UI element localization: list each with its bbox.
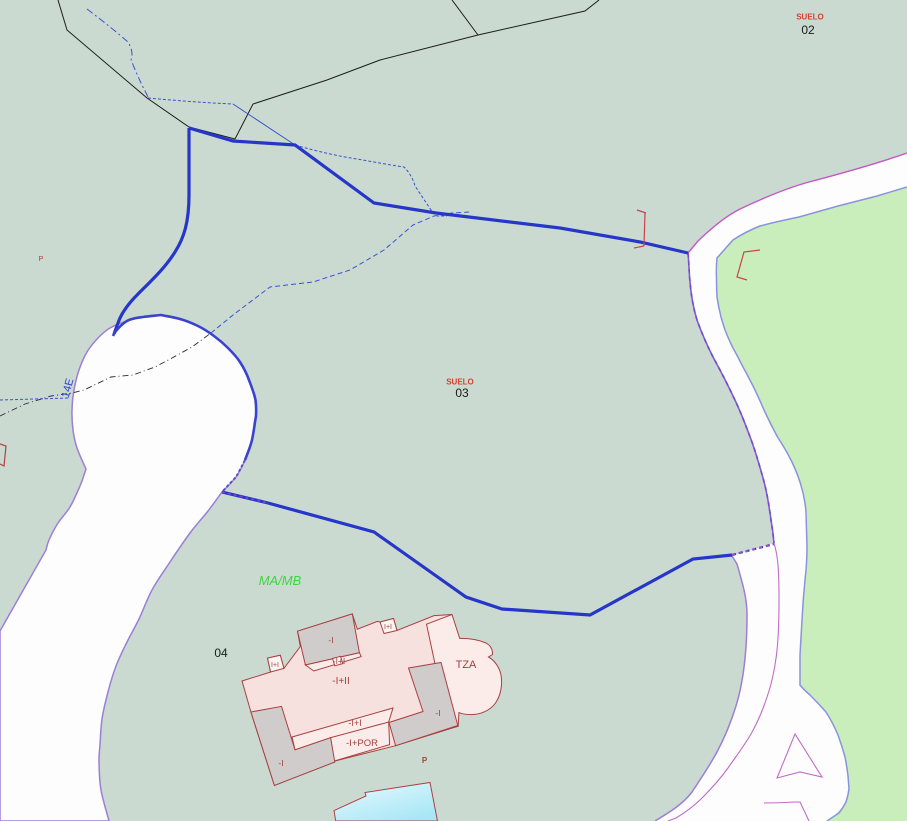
- svg-text:SUELO: SUELO: [796, 13, 824, 22]
- svg-text:04: 04: [214, 646, 228, 660]
- svg-text:TZA: TZA: [456, 659, 477, 671]
- svg-text:-I+I: -I+I: [333, 656, 346, 666]
- svg-text:I+I: I+I: [271, 662, 279, 669]
- svg-text:P: P: [422, 756, 428, 765]
- svg-text:MA/MB: MA/MB: [259, 573, 302, 588]
- svg-text:-I: -I: [435, 708, 440, 718]
- svg-text:-I: -I: [328, 635, 333, 645]
- svg-text:03: 03: [455, 386, 469, 400]
- svg-text:P: P: [39, 256, 44, 263]
- svg-text:-I+I: -I+I: [348, 718, 361, 728]
- svg-text:02: 02: [801, 23, 815, 37]
- svg-text:-I: -I: [278, 758, 283, 768]
- svg-text:I+I: I+I: [384, 624, 392, 631]
- svg-text:-I+POR: -I+POR: [346, 738, 378, 749]
- svg-text:-I+II: -I+II: [332, 676, 350, 687]
